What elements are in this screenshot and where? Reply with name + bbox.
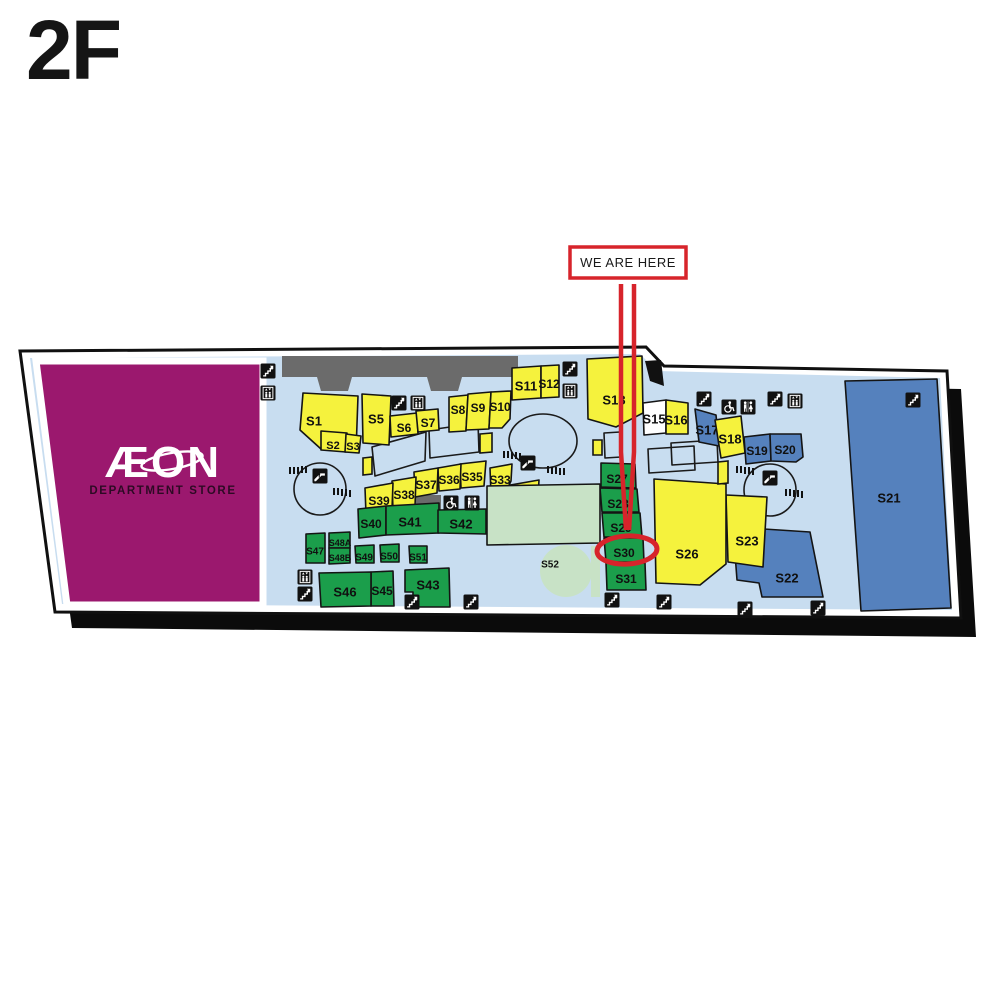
elevator-icon <box>788 394 803 409</box>
shop-s41-label: S41 <box>398 515 421 530</box>
shop-s15-label: S15 <box>642 412 665 427</box>
mall-floor-map: S1S2S3S5S6S7S8S9S10S11S12S13S15S16S17S18… <box>0 0 1001 1001</box>
shop-s3-label: S3 <box>346 441 359 453</box>
elevator-icon <box>563 384 578 399</box>
shop-s7-label: S7 <box>421 416 436 430</box>
shop-s35-label: S35 <box>461 470 483 484</box>
shop-s9-label: S9 <box>471 401 486 415</box>
toilets-icon <box>741 400 756 415</box>
shop-s20-label: S20 <box>774 443 796 457</box>
stairs-icon <box>811 601 826 616</box>
wheelchair-icon <box>444 496 459 511</box>
shop-s30-label: S30 <box>613 546 635 560</box>
shop-s2-label: S2 <box>326 440 339 452</box>
stairs-icon <box>605 593 620 608</box>
stairs-icon <box>563 362 578 377</box>
shop-s11-label: S11 <box>515 379 537 394</box>
shop-s51-label: S51 <box>409 553 427 564</box>
shop-s38-label: S38 <box>393 488 415 502</box>
shop-s48a-label: S48A <box>329 538 352 548</box>
shop-s49-label: S49 <box>355 553 373 564</box>
stairs-icon <box>738 602 753 617</box>
stairs-icon <box>768 392 783 407</box>
stairs-icon <box>906 393 921 408</box>
shop-s12-label: S12 <box>538 377 560 391</box>
stairs-icon <box>405 595 420 610</box>
shop-s26-label: S26 <box>675 547 698 562</box>
shop-s19-label: S19 <box>746 444 768 458</box>
stairs-icon <box>657 595 672 610</box>
shop-s42-label: S42 <box>449 517 472 532</box>
shop-s43-label: S43 <box>416 578 439 593</box>
aeon-logo: ÆON <box>105 438 221 487</box>
shop-s47-label: S47 <box>306 547 324 558</box>
wheelchair-icon <box>722 400 737 415</box>
shop-s46-label: S46 <box>333 585 356 600</box>
elevator-icon <box>411 396 426 411</box>
shop-s23-label: S23 <box>735 534 758 549</box>
shop-s26 <box>654 479 726 585</box>
shop-s18-label: S18 <box>718 432 741 447</box>
shop-s8-label: S8 <box>451 403 466 417</box>
shop-s40-label: S40 <box>360 517 382 531</box>
escalator-icon <box>763 471 778 486</box>
shop-s22-label: S22 <box>775 571 798 586</box>
stairs-icon <box>298 587 313 602</box>
shop-s52-label: S52 <box>541 560 559 571</box>
shop-s52 <box>487 484 600 545</box>
stairs-icon <box>392 396 407 411</box>
shop-s50-label: S50 <box>380 552 398 563</box>
aeon-department-store: ÆON DEPARTMENT STORE <box>36 361 263 605</box>
elevator-icon <box>261 386 276 401</box>
shop-s1-label: S1 <box>306 414 322 429</box>
shop-s10-label: S10 <box>489 400 511 414</box>
shop-s37-label: S37 <box>415 478 437 492</box>
elevator-icon <box>298 570 313 585</box>
stairs-icon <box>261 364 276 379</box>
shop-s48b-label: S48B <box>329 553 352 563</box>
shop-s5-label: S5 <box>368 412 384 427</box>
escalator-icon <box>521 456 536 471</box>
floor-map-page: 2F <box>0 0 1001 1001</box>
shop-s36-label: S36 <box>438 473 460 487</box>
stairs-icon <box>464 595 479 610</box>
shop-s31-label: S31 <box>615 572 637 586</box>
aeon-subtitle: DEPARTMENT STORE <box>89 485 236 497</box>
shop-s6-label: S6 <box>397 421 412 435</box>
shop-s21-label: S21 <box>877 491 900 506</box>
we-are-here-label: WE ARE HERE <box>580 255 676 270</box>
escalator-icon <box>313 469 328 484</box>
toilets-icon <box>465 496 480 511</box>
shop-s23 <box>726 495 767 567</box>
shop-s45-label: S45 <box>371 584 393 598</box>
shop-s16-label: S16 <box>664 413 687 428</box>
stairs-icon <box>697 392 712 407</box>
